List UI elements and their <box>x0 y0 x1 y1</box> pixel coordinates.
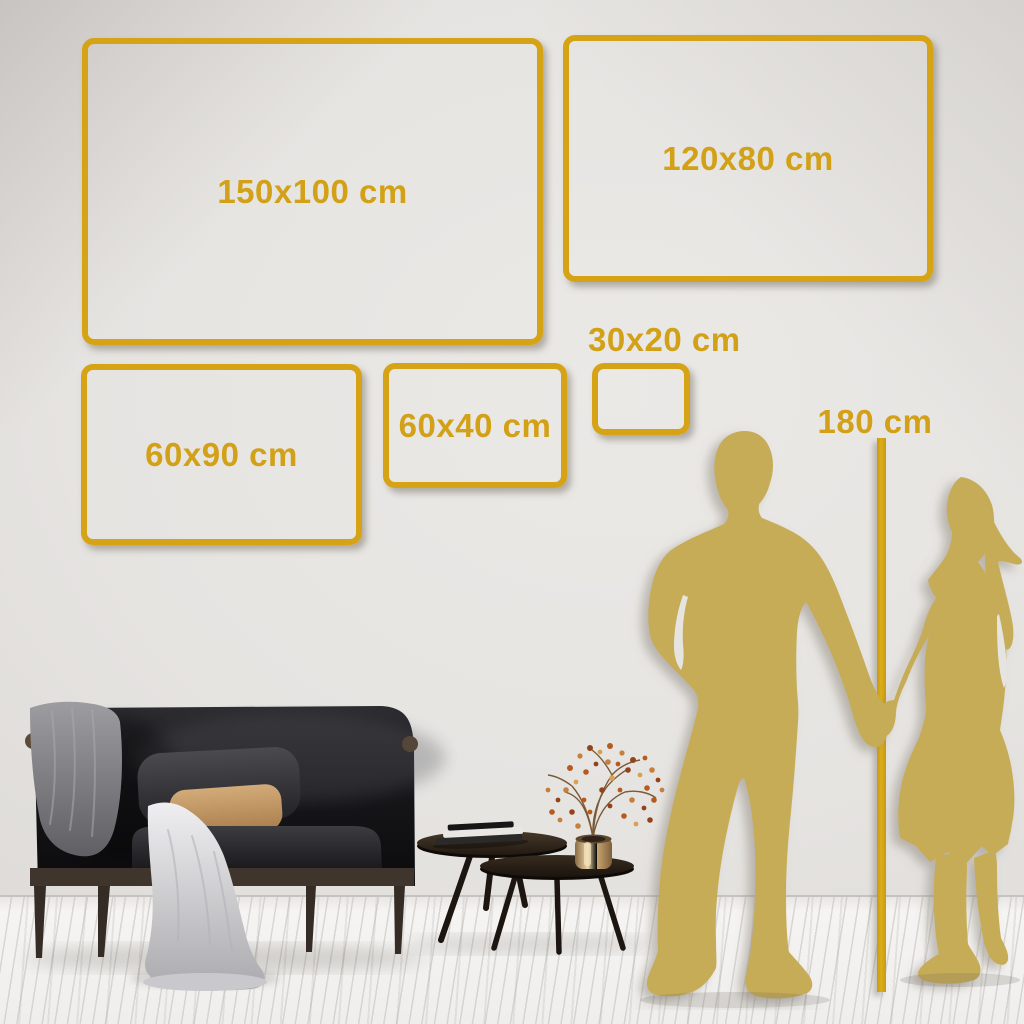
height-marker-label: 180 cm <box>815 403 935 441</box>
size-label-30x20: 30x20 cm <box>588 321 741 359</box>
size-label-60x90: 60x90 cm <box>145 436 298 474</box>
height-marker-line <box>877 438 886 992</box>
floor <box>0 895 1024 1024</box>
size-frame-150x100: 150x100 cm <box>82 38 543 345</box>
size-frame-120x80: 120x80 cm <box>563 35 933 282</box>
size-frame-60x40: 60x40 cm <box>383 363 567 488</box>
size-frame-60x90: 60x90 cm <box>81 364 362 545</box>
size-label-150x100: 150x100 cm <box>217 173 407 211</box>
size-guide-mockup: 150x100 cm 120x80 cm 60x90 cm 60x40 cm 3… <box>0 0 1024 1024</box>
size-label-120x80: 120x80 cm <box>662 140 833 178</box>
size-frame-30x20 <box>592 363 690 435</box>
size-label-60x40: 60x40 cm <box>399 407 552 445</box>
